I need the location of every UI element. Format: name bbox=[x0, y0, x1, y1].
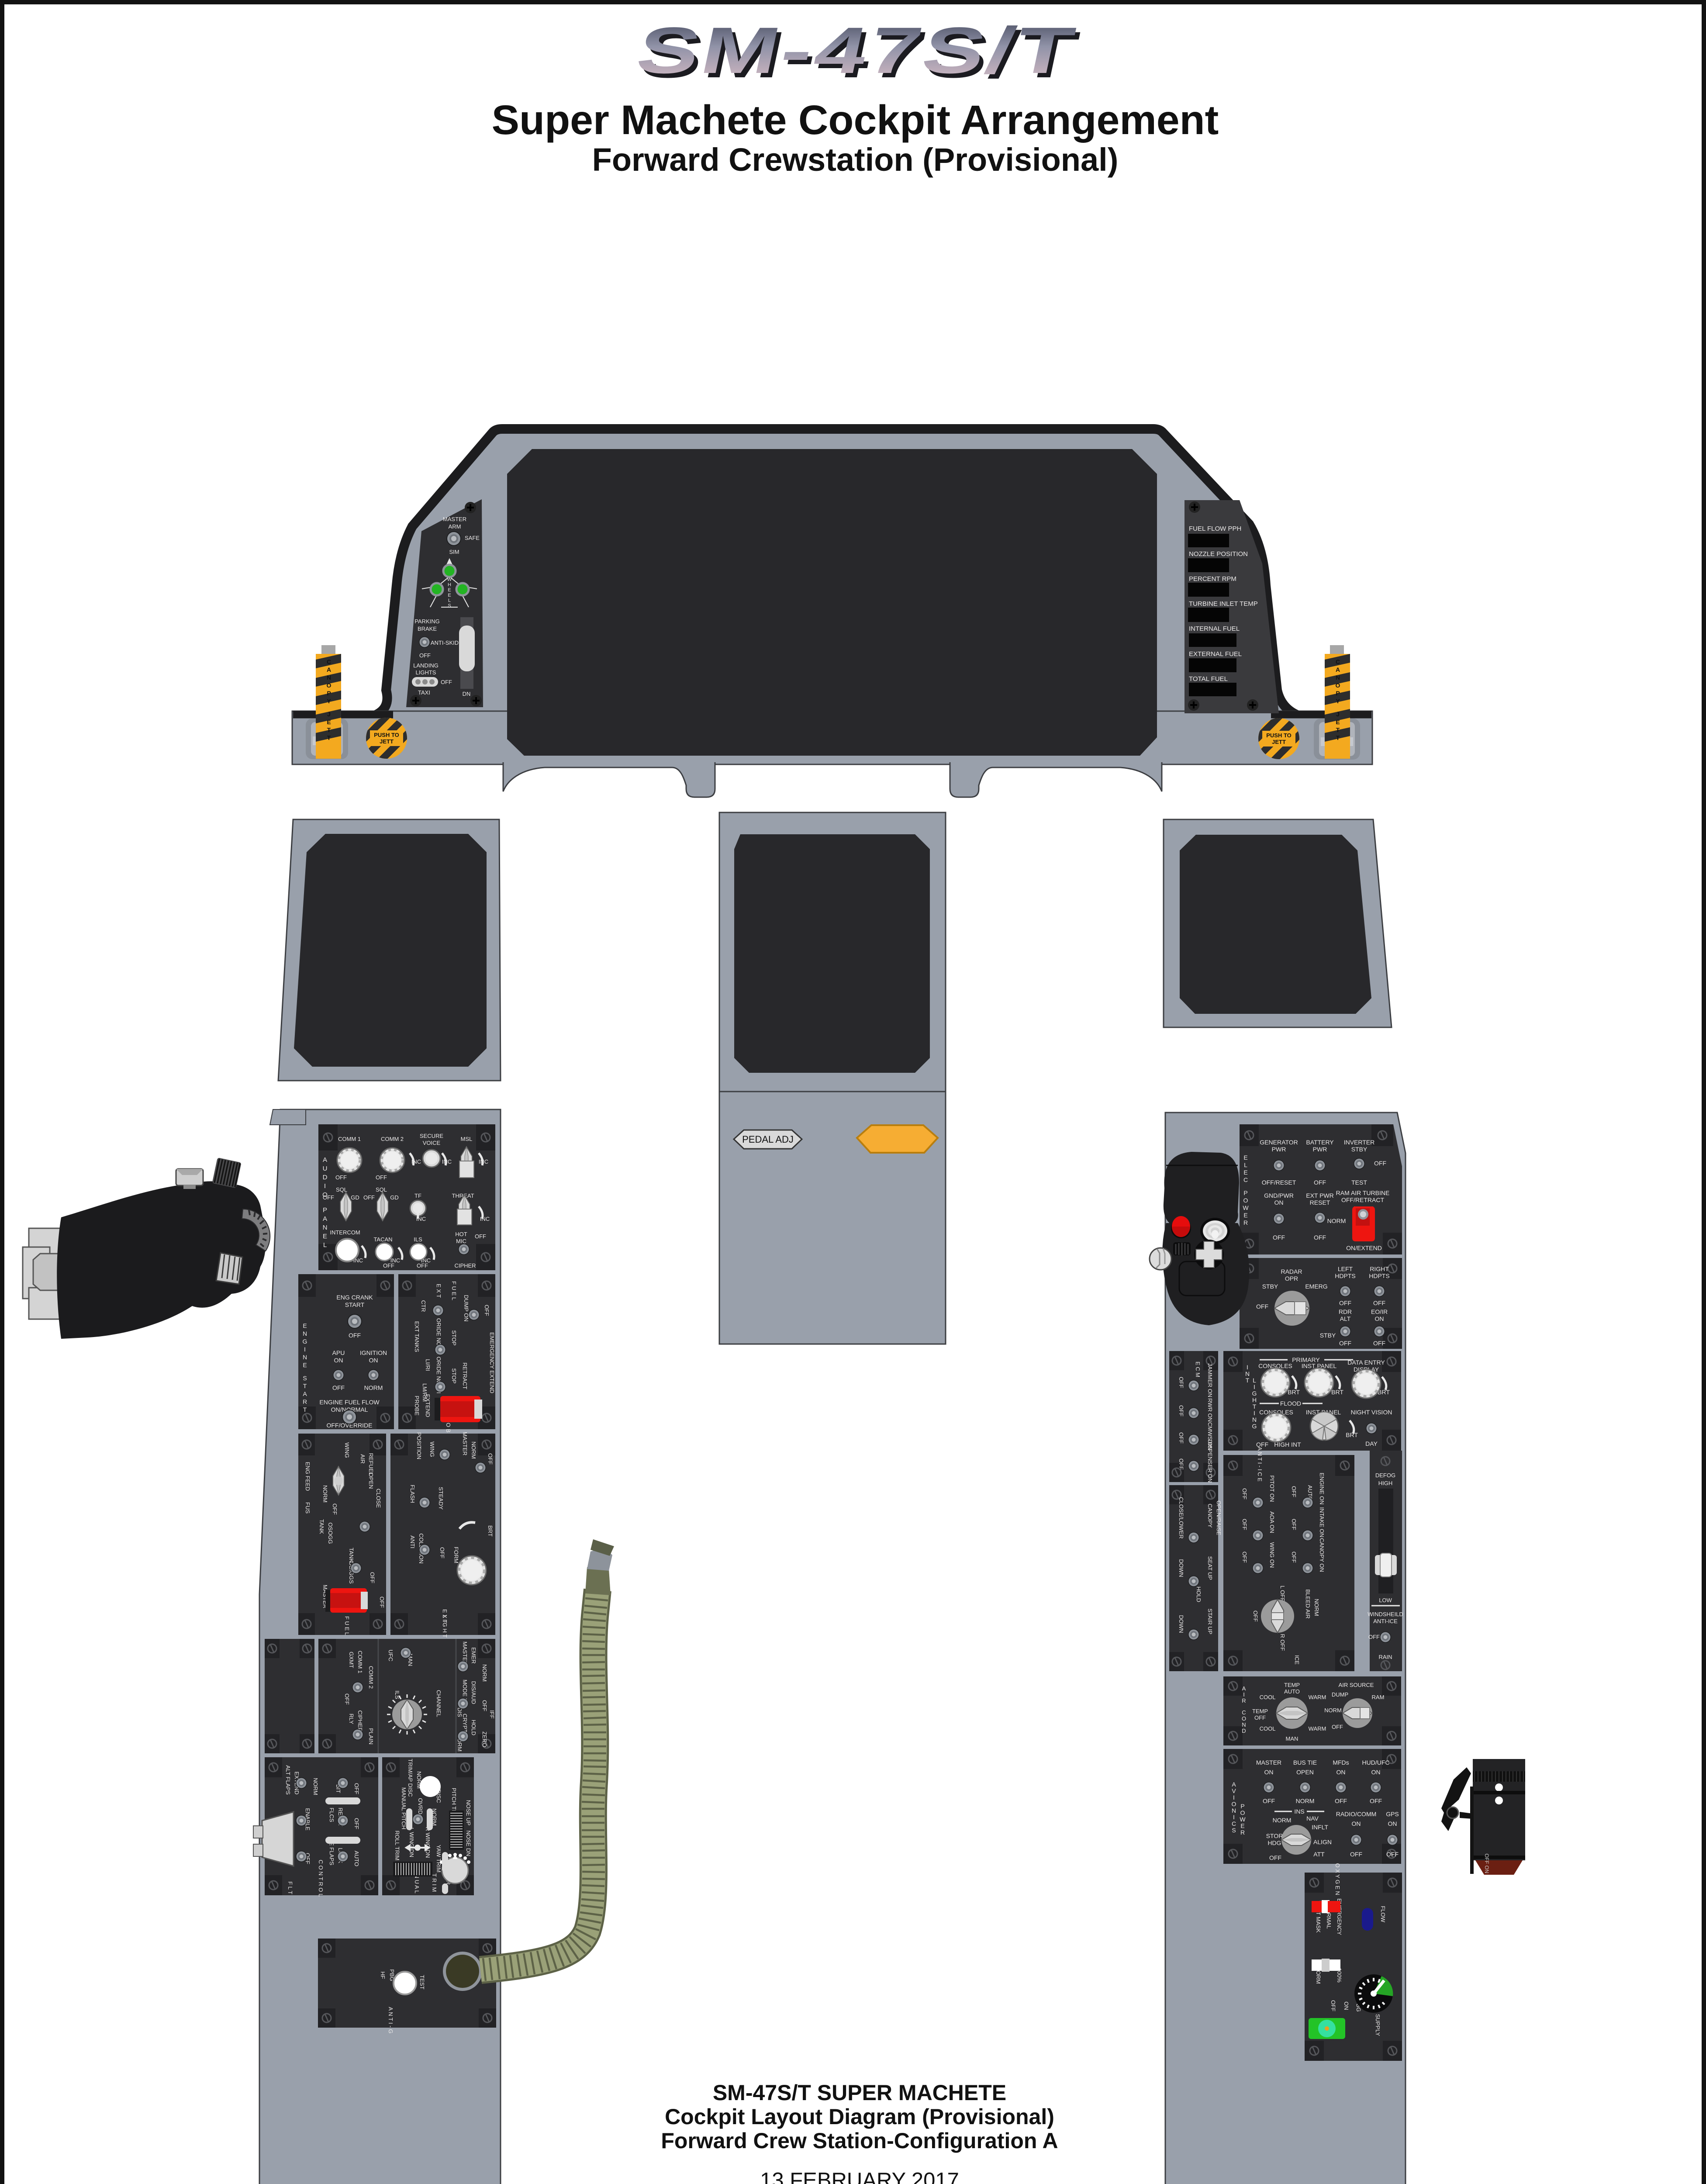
svg-text:E: E bbox=[303, 1362, 307, 1368]
svg-text:TEMP: TEMP bbox=[1284, 1682, 1300, 1688]
svg-text:C: C bbox=[1243, 1176, 1248, 1183]
svg-text:LEFT: LEFT bbox=[1338, 1265, 1353, 1272]
svg-text:F U E L: F U E L bbox=[344, 1616, 350, 1635]
svg-text:W: W bbox=[447, 577, 452, 582]
svg-text:I: I bbox=[1247, 1364, 1248, 1371]
svg-text:OFF: OFF bbox=[1339, 1299, 1351, 1306]
svg-text:E: E bbox=[1243, 1169, 1247, 1176]
svg-text:ON/EXTEND: ON/EXTEND bbox=[1346, 1244, 1382, 1251]
svg-text:MASTER: MASTER bbox=[462, 1432, 468, 1455]
svg-text:PERCENT RPM: PERCENT RPM bbox=[1189, 575, 1236, 583]
svg-text:YAW TRIM: YAW TRIM bbox=[435, 1845, 442, 1872]
svg-text:ANTI-SKID: ANTI-SKID bbox=[431, 639, 459, 646]
svg-text:ON: ON bbox=[1388, 1820, 1397, 1827]
svg-text:RDR: RDR bbox=[1339, 1308, 1352, 1315]
svg-text:A N T I - I C E: A N T I - I C E bbox=[1257, 1447, 1263, 1482]
svg-text:OFF: OFF bbox=[1370, 1797, 1382, 1804]
svg-text:OFF: OFF bbox=[1254, 1714, 1266, 1721]
svg-text:PWR: PWR bbox=[1313, 1146, 1327, 1153]
svg-text:P: P bbox=[323, 1206, 327, 1214]
svg-text:BATTERY: BATTERY bbox=[1306, 1139, 1334, 1146]
svg-text:PWR: PWR bbox=[1272, 1146, 1286, 1153]
svg-text:OFF: OFF bbox=[353, 1818, 360, 1829]
svg-text:SM-47S/T SUPER MACHETE: SM-47S/T SUPER MACHETE bbox=[713, 2080, 1006, 2105]
svg-text:SECURE: SECURE bbox=[420, 1133, 444, 1139]
svg-text:R OFF: R OFF bbox=[1279, 1634, 1286, 1651]
svg-text:INS: INS bbox=[1294, 1808, 1304, 1815]
svg-text:I: I bbox=[1233, 1814, 1235, 1821]
svg-text:COMM 2: COMM 2 bbox=[368, 1666, 374, 1689]
svg-text:COMM 1: COMM 1 bbox=[338, 1136, 361, 1142]
svg-text:ENGINE ON: ENGINE ON bbox=[1319, 1473, 1325, 1505]
svg-text:OFF: OFF bbox=[376, 1174, 387, 1181]
svg-text:A: A bbox=[323, 1156, 327, 1164]
svg-text:EO/IR: EO/IR bbox=[1371, 1308, 1388, 1315]
svg-text:G: G bbox=[1252, 1390, 1257, 1397]
svg-text:OFF: OFF bbox=[353, 1783, 360, 1794]
svg-text:H: H bbox=[1252, 1396, 1257, 1403]
svg-text:HOT: HOT bbox=[455, 1231, 467, 1237]
svg-text:TRIM/AP DISC: TRIM/AP DISC bbox=[407, 1759, 414, 1797]
svg-text:OFF: OFF bbox=[1291, 1552, 1297, 1563]
svg-text:DIS/AUD: DIS/AUD bbox=[470, 1681, 477, 1704]
svg-text:RIGHT: RIGHT bbox=[1370, 1265, 1389, 1272]
svg-text:PARKING: PARKING bbox=[414, 618, 440, 625]
svg-text:ATT: ATT bbox=[1313, 1851, 1325, 1858]
svg-text:NORM: NORM bbox=[1324, 1707, 1342, 1714]
svg-text:ON: ON bbox=[1375, 1315, 1384, 1322]
svg-text:VOICE: VOICE bbox=[423, 1140, 441, 1146]
svg-text:HIGH: HIGH bbox=[1378, 1480, 1393, 1486]
svg-text:SIM: SIM bbox=[449, 549, 459, 555]
svg-text:NORM: NORM bbox=[312, 1778, 319, 1795]
svg-text:OFF: OFF bbox=[439, 1547, 445, 1559]
svg-text:N: N bbox=[1232, 1807, 1236, 1814]
svg-text:S: S bbox=[303, 1375, 307, 1382]
svg-text:ALIGN: ALIGN bbox=[1313, 1838, 1332, 1845]
svg-text:OFF: OFF bbox=[441, 679, 452, 685]
svg-text:OFF: OFF bbox=[483, 1305, 490, 1316]
svg-text:F U E L: F U E L bbox=[451, 1281, 457, 1300]
svg-text:E: E bbox=[303, 1322, 307, 1329]
svg-text:FUEL FLOW PPH: FUEL FLOW PPH bbox=[1189, 525, 1241, 532]
svg-text:GENERATOR: GENERATOR bbox=[1260, 1139, 1298, 1146]
svg-text:EMERG: EMERG bbox=[1305, 1283, 1327, 1290]
svg-text:T: T bbox=[1253, 1403, 1257, 1410]
svg-text:ROLL TRIM: ROLL TRIM bbox=[394, 1831, 401, 1861]
svg-text:E X T: E X T bbox=[435, 1284, 442, 1298]
svg-text:C: C bbox=[1336, 658, 1340, 665]
svg-text:SQL: SQL bbox=[376, 1186, 387, 1193]
svg-text:DN: DN bbox=[463, 691, 471, 697]
svg-text:EMER: EMER bbox=[470, 1647, 477, 1664]
svg-text:TANK: TANK bbox=[348, 1548, 355, 1562]
svg-text:PEDAL ADJ: PEDAL ADJ bbox=[742, 1134, 794, 1145]
svg-text:NOSE DN: NOSE DN bbox=[465, 1830, 472, 1856]
svg-text:O: O bbox=[1243, 1197, 1248, 1204]
svg-text:HF: HF bbox=[380, 1971, 386, 1979]
svg-text:J: J bbox=[327, 711, 331, 718]
svg-text:P: P bbox=[1243, 1189, 1247, 1196]
svg-text:ON: ON bbox=[1264, 1769, 1274, 1776]
svg-text:I: I bbox=[1233, 1794, 1235, 1801]
svg-text:SEAT UP: SEAT UP bbox=[1207, 1556, 1213, 1580]
svg-text:STOR: STOR bbox=[1266, 1832, 1283, 1839]
svg-text:G: G bbox=[303, 1338, 307, 1345]
svg-text:OFF: OFF bbox=[1386, 1851, 1399, 1858]
svg-text:R: R bbox=[1242, 1697, 1246, 1704]
svg-text:Forward Crewstation (Provision: Forward Crewstation (Provisional) bbox=[592, 142, 1119, 178]
svg-text:E: E bbox=[1240, 1822, 1244, 1829]
svg-text:E: E bbox=[1243, 1212, 1247, 1219]
svg-text:WINDSHEILD: WINDSHEILD bbox=[1368, 1611, 1403, 1617]
svg-text:DATA ENTRY: DATA ENTRY bbox=[1347, 1359, 1385, 1366]
svg-text:CTR: CTR bbox=[420, 1300, 427, 1312]
svg-text:R: R bbox=[303, 1398, 307, 1405]
svg-text:W: W bbox=[1243, 1204, 1249, 1211]
svg-text:OFF: OFF bbox=[1373, 1299, 1385, 1306]
svg-text:OFF/RETRACT: OFF/RETRACT bbox=[1341, 1196, 1384, 1203]
svg-text:OFF: OFF bbox=[1373, 1340, 1385, 1347]
svg-text:HOLD: HOLD bbox=[1195, 1586, 1202, 1602]
svg-text:ILS: ILS bbox=[414, 1236, 422, 1243]
svg-text:V: V bbox=[1232, 1787, 1236, 1794]
svg-text:R WING DN: R WING DN bbox=[425, 1827, 431, 1858]
svg-text:ILS: ILS bbox=[394, 1690, 401, 1699]
svg-text:PITOT ON: PITOT ON bbox=[1269, 1476, 1275, 1502]
svg-text:CIPHER: CIPHER bbox=[357, 1710, 363, 1731]
svg-text:NORM: NORM bbox=[364, 1384, 383, 1391]
svg-text:WING: WING bbox=[429, 1441, 435, 1457]
svg-text:DEFOG: DEFOG bbox=[1375, 1472, 1395, 1479]
svg-text:OFF: OFF bbox=[419, 652, 431, 659]
svg-text:AIR: AIR bbox=[359, 1454, 366, 1464]
svg-text:INTERCOM: INTERCOM bbox=[330, 1229, 360, 1236]
svg-text:OFF: OFF bbox=[344, 1693, 350, 1705]
svg-text:GD: GD bbox=[390, 1194, 399, 1201]
svg-text:L WING DN: L WING DN bbox=[408, 1828, 415, 1857]
svg-text:ON: ON bbox=[369, 1357, 378, 1364]
svg-text:ENGINE FUEL FLOW: ENGINE FUEL FLOW bbox=[319, 1399, 380, 1406]
svg-text:L: L bbox=[448, 598, 451, 603]
svg-text:BRT: BRT bbox=[487, 1525, 494, 1537]
svg-text:C: C bbox=[1232, 1820, 1236, 1827]
svg-text:OFF: OFF bbox=[1368, 1634, 1380, 1640]
svg-text:STBY: STBY bbox=[1262, 1283, 1278, 1290]
svg-text:A: A bbox=[327, 666, 331, 673]
svg-text:TACAN: TACAN bbox=[373, 1236, 392, 1243]
svg-text:OFF: OFF bbox=[1339, 1340, 1351, 1347]
svg-text:OFF: OFF bbox=[363, 1194, 375, 1201]
svg-text:CANOPY ON: CANOPY ON bbox=[1319, 1538, 1325, 1572]
svg-text:LIGHTS: LIGHTS bbox=[416, 669, 436, 676]
svg-text:DUMP: DUMP bbox=[1332, 1691, 1348, 1698]
svg-text:U: U bbox=[323, 1165, 328, 1172]
svg-text:INTAKE ON: INTAKE ON bbox=[1319, 1507, 1325, 1537]
svg-text:E: E bbox=[448, 587, 451, 593]
svg-text:O: O bbox=[1240, 1809, 1245, 1816]
svg-text:N: N bbox=[1252, 1416, 1257, 1423]
svg-text:J: J bbox=[1336, 711, 1340, 718]
svg-text:TANK: TANK bbox=[318, 1519, 325, 1534]
svg-text:L: L bbox=[1244, 1161, 1247, 1168]
svg-text:I: I bbox=[1243, 1691, 1245, 1698]
svg-text:OFF/RESET: OFF/RESET bbox=[1262, 1179, 1296, 1186]
svg-text:EXTERNAL FUEL: EXTERNAL FUEL bbox=[1189, 650, 1242, 658]
svg-text:OFF: OFF bbox=[1291, 1519, 1297, 1530]
svg-text:CLOSE: CLOSE bbox=[375, 1489, 382, 1508]
svg-text:NIGHT VISION: NIGHT VISION bbox=[1351, 1409, 1392, 1416]
svg-text:EXTEND: EXTEND bbox=[425, 1394, 431, 1417]
svg-text:Y: Y bbox=[327, 698, 331, 705]
svg-text:O: O bbox=[327, 682, 332, 689]
svg-text:INC: INC bbox=[390, 1257, 400, 1264]
svg-text:C O N T R O L: C O N T R O L bbox=[318, 1860, 324, 1897]
svg-text:AUTO: AUTO bbox=[1284, 1688, 1300, 1695]
svg-text:ANTI: ANTI bbox=[409, 1535, 416, 1548]
svg-text:T: T bbox=[1336, 726, 1340, 733]
svg-text:OSOGG: OSOGG bbox=[327, 1522, 334, 1544]
svg-text:PLAIN: PLAIN bbox=[368, 1728, 374, 1745]
svg-text:OFF: OFF bbox=[1241, 1519, 1248, 1530]
svg-text:BUS TIE: BUS TIE bbox=[1293, 1759, 1317, 1766]
svg-text:TEMP: TEMP bbox=[1252, 1708, 1268, 1714]
svg-text:OFF: OFF bbox=[1314, 1234, 1326, 1241]
svg-text:OFF: OFF bbox=[1335, 1797, 1347, 1804]
svg-text:N: N bbox=[327, 674, 331, 681]
svg-text:WING: WING bbox=[344, 1442, 350, 1458]
svg-text:A N T I - G: A N T I - G bbox=[387, 2007, 394, 2034]
svg-text:N: N bbox=[1245, 1370, 1250, 1377]
svg-text:WARM: WARM bbox=[1309, 1694, 1326, 1700]
svg-text:O X Y G E N: O X Y G E N bbox=[1334, 1863, 1341, 1895]
svg-text:OFF ON: OFF ON bbox=[1484, 1853, 1490, 1873]
svg-text:MAN: MAN bbox=[1286, 1735, 1298, 1742]
svg-text:OFF: OFF bbox=[1178, 1405, 1185, 1417]
svg-text:OFF: OFF bbox=[1241, 1488, 1248, 1500]
svg-text:ON: ON bbox=[334, 1357, 343, 1364]
svg-text:SUPPLY: SUPPLY bbox=[1374, 2014, 1381, 2036]
svg-text:OFF: OFF bbox=[1332, 1724, 1343, 1730]
svg-text:TEST: TEST bbox=[1351, 1179, 1367, 1186]
svg-text:STOP: STOP bbox=[451, 1330, 457, 1345]
svg-text:MSL: MSL bbox=[461, 1136, 473, 1142]
svg-text:MFDs: MFDs bbox=[1333, 1759, 1349, 1766]
svg-text:OFF: OFF bbox=[1252, 1610, 1259, 1622]
svg-text:R: R bbox=[1240, 1829, 1245, 1836]
svg-text:OFF: OFF bbox=[335, 1174, 347, 1181]
svg-text:EMERGENCY EXTEND: EMERGENCY EXTEND bbox=[489, 1332, 495, 1393]
svg-text:ON: ON bbox=[1371, 1769, 1381, 1776]
svg-text:GND/PWR: GND/PWR bbox=[1264, 1192, 1294, 1199]
svg-text:BRT: BRT bbox=[1288, 1389, 1300, 1396]
svg-text:G: G bbox=[1252, 1423, 1257, 1430]
svg-text:NOZZLE POSITION: NOZZLE POSITION bbox=[1189, 550, 1248, 558]
svg-text:ON: ON bbox=[1343, 2001, 1350, 2010]
svg-text:CANOPY: CANOPY bbox=[1207, 1504, 1213, 1528]
svg-text:OFF: OFF bbox=[332, 1384, 345, 1391]
svg-text:OFF: OFF bbox=[1241, 1552, 1248, 1563]
svg-text:RESET: RESET bbox=[1310, 1199, 1330, 1206]
svg-text:D: D bbox=[323, 1174, 328, 1181]
svg-text:OFF: OFF bbox=[1273, 1234, 1285, 1241]
svg-text:C: C bbox=[1242, 1709, 1246, 1716]
svg-text:R: R bbox=[1243, 1219, 1248, 1226]
svg-text:OPEN: OPEN bbox=[1296, 1769, 1314, 1776]
svg-text:OFF: OFF bbox=[1350, 1851, 1362, 1858]
svg-text:TOTAL FUEL: TOTAL FUEL bbox=[1189, 675, 1228, 683]
svg-text:A: A bbox=[1336, 666, 1340, 673]
svg-text:IGNITION: IGNITION bbox=[360, 1349, 387, 1356]
svg-text:AUTO: AUTO bbox=[353, 1851, 360, 1866]
svg-text:RWR ON: RWR ON bbox=[1207, 1398, 1213, 1422]
svg-text:NAV: NAV bbox=[1306, 1815, 1319, 1822]
svg-text:OFF: OFF bbox=[1178, 1377, 1185, 1388]
svg-text:OFF: OFF bbox=[1178, 1432, 1185, 1444]
svg-text:DOWN: DOWN bbox=[1178, 1559, 1185, 1577]
svg-text:Cockpit Layout Diagram (Provis: Cockpit Layout Diagram (Provisional) bbox=[665, 2105, 1054, 2129]
svg-text:STOP: STOP bbox=[451, 1368, 457, 1383]
svg-text:TEST: TEST bbox=[419, 1975, 425, 1989]
svg-text:ON: ON bbox=[1336, 1769, 1346, 1776]
svg-text:POSITION: POSITION bbox=[416, 1432, 422, 1459]
svg-text:EXT PWR: EXT PWR bbox=[1306, 1192, 1334, 1199]
svg-text:OFF: OFF bbox=[1256, 1303, 1268, 1310]
svg-text:GXMT: GXMT bbox=[348, 1652, 355, 1668]
svg-text:BRT: BRT bbox=[1346, 1431, 1358, 1438]
svg-text:NOSE UP: NOSE UP bbox=[465, 1800, 472, 1826]
svg-text:FORM: FORM bbox=[453, 1547, 459, 1563]
svg-text:GD: GD bbox=[351, 1194, 359, 1201]
svg-text:MASTER: MASTER bbox=[443, 516, 466, 522]
svg-text:A: A bbox=[303, 1390, 307, 1397]
svg-text:O: O bbox=[1242, 1715, 1246, 1722]
svg-text:ICE: ICE bbox=[1294, 1655, 1300, 1665]
svg-text:OFF: OFF bbox=[349, 1332, 361, 1339]
svg-text:ENG CRANK: ENG CRANK bbox=[336, 1294, 373, 1301]
svg-text:E: E bbox=[1243, 1154, 1247, 1161]
svg-text:HUD/UFC: HUD/UFC bbox=[1362, 1759, 1390, 1766]
svg-text:Forward Crew Station-Configura: Forward Crew Station-Configuration A bbox=[661, 2129, 1058, 2153]
svg-text:RADAR: RADAR bbox=[1281, 1268, 1302, 1275]
svg-text:I: I bbox=[1254, 1383, 1255, 1390]
svg-text:DUMP ON: DUMP ON bbox=[463, 1295, 470, 1321]
svg-text:E C M: E C M bbox=[1195, 1362, 1201, 1377]
svg-text:TF: TF bbox=[414, 1192, 421, 1199]
svg-text:TAXI: TAXI bbox=[418, 689, 430, 696]
svg-text:O: O bbox=[1336, 682, 1340, 689]
svg-text:INTERNAL FUEL: INTERNAL FUEL bbox=[1189, 625, 1240, 632]
svg-text:A: A bbox=[1242, 1685, 1246, 1692]
svg-text:COOL: COOL bbox=[1260, 1725, 1276, 1732]
svg-text:I: I bbox=[1254, 1410, 1255, 1417]
svg-text:S: S bbox=[1232, 1827, 1236, 1834]
svg-text:RAM: RAM bbox=[1372, 1694, 1385, 1700]
svg-text:INFLT: INFLT bbox=[1312, 1824, 1328, 1831]
svg-text:HDG: HDG bbox=[1267, 1839, 1281, 1846]
svg-text:ZERO: ZERO bbox=[481, 1731, 488, 1747]
svg-text:N: N bbox=[1242, 1721, 1246, 1728]
svg-text:FLOOD: FLOOD bbox=[1280, 1400, 1301, 1407]
svg-text:OFF: OFF bbox=[1330, 2000, 1336, 2011]
svg-text:COOL: COOL bbox=[1260, 1694, 1276, 1700]
svg-text:NORM: NORM bbox=[1313, 1599, 1320, 1616]
svg-text:P: P bbox=[1240, 1803, 1244, 1810]
svg-text:NORM: NORM bbox=[1327, 1217, 1346, 1224]
svg-text:OFF: OFF bbox=[1314, 1179, 1326, 1186]
svg-text:OFF: OFF bbox=[1263, 1797, 1275, 1804]
svg-text:NORM: NORM bbox=[322, 1485, 328, 1503]
svg-text:OFF: OFF bbox=[487, 1453, 494, 1465]
svg-text:T: T bbox=[1246, 1377, 1250, 1384]
svg-text:E: E bbox=[448, 593, 451, 598]
svg-text:ON: ON bbox=[1274, 1199, 1284, 1206]
svg-text:RETRACT: RETRACT bbox=[462, 1362, 468, 1389]
svg-text:OFF: OFF bbox=[1291, 1486, 1297, 1497]
svg-text:HDPTS: HDPTS bbox=[1335, 1272, 1355, 1279]
svg-text:ON: ON bbox=[1352, 1820, 1361, 1827]
svg-text:Y: Y bbox=[1336, 698, 1340, 705]
svg-text:MIC: MIC bbox=[456, 1238, 466, 1244]
svg-text:E: E bbox=[327, 719, 331, 726]
svg-text:INC: INC bbox=[480, 1216, 490, 1222]
svg-text:GPS: GPS bbox=[1386, 1811, 1399, 1818]
svg-text:ALT FLAPS: ALT FLAPS bbox=[285, 1765, 291, 1795]
svg-text:I: I bbox=[304, 1346, 306, 1353]
svg-text:OPEN: OPEN bbox=[368, 1473, 374, 1489]
svg-text:CIPHER: CIPHER bbox=[454, 1262, 476, 1269]
svg-text:ENG FEED: ENG FEED bbox=[304, 1462, 311, 1491]
svg-text:T: T bbox=[327, 734, 331, 741]
svg-text:TURBINE INLET TEMP: TURBINE INLET TEMP bbox=[1189, 600, 1258, 608]
svg-text:RAM AIR TURBINE: RAM AIR TURBINE bbox=[1336, 1189, 1390, 1196]
svg-text:BRAKE: BRAKE bbox=[418, 625, 437, 632]
svg-text:T: T bbox=[327, 726, 331, 733]
svg-text:H: H bbox=[448, 582, 451, 587]
svg-text:JAMMER ON: JAMMER ON bbox=[1207, 1363, 1213, 1397]
svg-text:ARM: ARM bbox=[449, 523, 461, 530]
svg-text:START: START bbox=[345, 1301, 365, 1308]
svg-text:SM-47S/T: SM-47S/T bbox=[631, 14, 1084, 87]
svg-text:NORM: NORM bbox=[481, 1664, 488, 1682]
svg-text:OFF: OFF bbox=[475, 1233, 486, 1240]
svg-text:OVRD: OVRD bbox=[417, 1798, 424, 1814]
svg-text:N: N bbox=[323, 1224, 328, 1231]
svg-text:FLCS: FLCS bbox=[328, 1807, 335, 1822]
svg-text:MASTER: MASTER bbox=[1256, 1759, 1281, 1766]
svg-text:AOA ON: AOA ON bbox=[1269, 1511, 1275, 1533]
svg-text:A: A bbox=[323, 1215, 327, 1223]
svg-text:OFF: OFF bbox=[323, 1194, 334, 1201]
svg-text:NORM: NORM bbox=[470, 1441, 477, 1459]
svg-text:T: T bbox=[303, 1406, 307, 1413]
svg-text:PROBE: PROBE bbox=[414, 1396, 420, 1416]
svg-text:WARM: WARM bbox=[1309, 1725, 1326, 1732]
svg-text:OPR: OPR bbox=[1285, 1275, 1298, 1282]
svg-text:F L T: F L T bbox=[287, 1881, 294, 1894]
svg-text:NORM: NORM bbox=[1273, 1817, 1292, 1824]
svg-text:BRT: BRT bbox=[1331, 1389, 1343, 1396]
svg-text:I: I bbox=[324, 1182, 326, 1190]
svg-text:N: N bbox=[303, 1354, 307, 1361]
svg-text:S: S bbox=[448, 603, 451, 608]
svg-text:APU: APU bbox=[332, 1349, 345, 1356]
svg-text:INVERTER: INVERTER bbox=[1344, 1139, 1375, 1146]
svg-text:N: N bbox=[303, 1330, 307, 1337]
svg-text:P: P bbox=[1336, 690, 1340, 697]
svg-text:IFF: IFF bbox=[489, 1710, 495, 1719]
svg-text:HDPTS: HDPTS bbox=[1369, 1272, 1389, 1279]
